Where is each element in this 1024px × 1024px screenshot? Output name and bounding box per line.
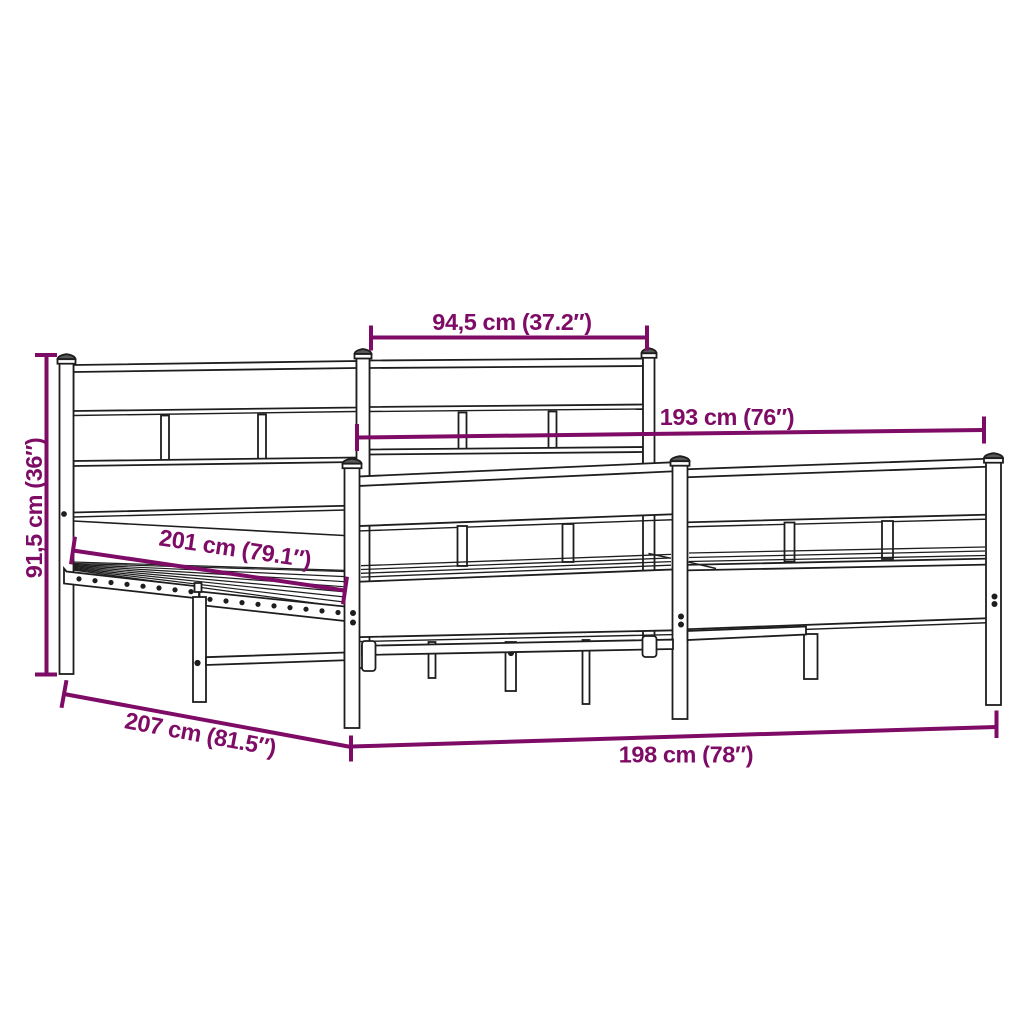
svg-text:198 cm (78″): 198 cm (78″)	[619, 742, 753, 768]
svg-text:94,5 cm (37.2″): 94,5 cm (37.2″)	[432, 309, 591, 335]
svg-text:193 cm (76″): 193 cm (76″)	[660, 404, 794, 430]
svg-text:91,5 cm (36″): 91,5 cm (36″)	[21, 438, 47, 579]
